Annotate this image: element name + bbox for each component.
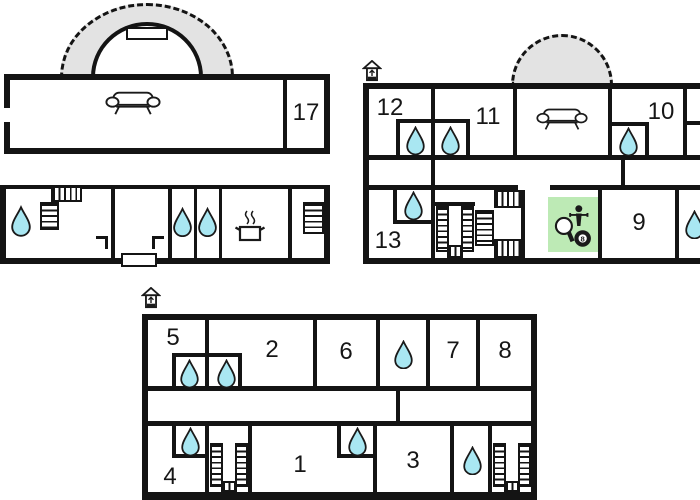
wall bbox=[0, 185, 6, 264]
wall bbox=[283, 80, 287, 148]
wall bbox=[598, 190, 602, 258]
staircase bbox=[303, 202, 324, 234]
wall bbox=[513, 89, 517, 155]
wall bbox=[373, 426, 377, 492]
wall bbox=[148, 386, 531, 391]
wall bbox=[4, 74, 10, 108]
wall bbox=[488, 426, 492, 492]
staircase bbox=[447, 245, 463, 258]
room-label-5: 5 bbox=[166, 324, 179, 352]
wall bbox=[396, 119, 400, 155]
room-label-4: 4 bbox=[163, 463, 176, 491]
wall bbox=[396, 391, 400, 426]
wall bbox=[4, 148, 330, 154]
staircase bbox=[51, 186, 82, 202]
wall bbox=[4, 74, 330, 80]
wall bbox=[645, 122, 649, 155]
wall bbox=[521, 190, 525, 258]
water-drop-icon bbox=[684, 210, 700, 239]
wall bbox=[363, 155, 700, 160]
room-label-1: 1 bbox=[293, 451, 306, 479]
eight-ball-icon: 8 bbox=[574, 230, 591, 247]
room-label-3: 3 bbox=[406, 447, 419, 475]
staircase bbox=[40, 202, 59, 230]
wall bbox=[466, 119, 470, 155]
wall bbox=[376, 320, 380, 386]
sofa-icon bbox=[105, 89, 161, 117]
water-drop-icon bbox=[618, 127, 639, 156]
water-drop-icon bbox=[440, 126, 461, 155]
wall bbox=[324, 74, 330, 154]
wall bbox=[476, 320, 480, 386]
wall bbox=[675, 190, 679, 258]
staircase bbox=[221, 481, 237, 492]
wall bbox=[142, 314, 148, 500]
foosball-player-icon bbox=[570, 205, 587, 226]
kitchen-pot-icon bbox=[232, 208, 268, 244]
staircase bbox=[494, 239, 521, 258]
room-label-8: 8 bbox=[498, 337, 511, 365]
sofa-icon bbox=[536, 106, 588, 132]
water-drop-icon bbox=[393, 340, 414, 369]
water-drop-icon bbox=[179, 359, 200, 388]
staircase bbox=[494, 190, 521, 208]
wall bbox=[0, 185, 330, 189]
water-drop-icon bbox=[405, 126, 426, 155]
wall bbox=[363, 258, 700, 264]
table-tennis-paddle-icon bbox=[556, 218, 573, 241]
floor-plan-canvas: 17 bbox=[0, 0, 700, 500]
water-drop-icon bbox=[172, 207, 193, 237]
wall bbox=[288, 189, 292, 258]
wall bbox=[393, 190, 397, 224]
room-label-17: 17 bbox=[293, 99, 320, 127]
wall bbox=[363, 83, 700, 89]
water-drop-icon bbox=[197, 207, 218, 237]
wall bbox=[393, 220, 431, 224]
dome-terrace bbox=[511, 34, 613, 85]
door-opening bbox=[105, 236, 108, 249]
wall bbox=[172, 353, 242, 357]
room-label-7: 7 bbox=[446, 337, 459, 365]
wall bbox=[238, 353, 242, 386]
room-label-9: 9 bbox=[632, 209, 645, 237]
water-drop-icon bbox=[403, 191, 424, 220]
room-label-13: 13 bbox=[375, 227, 402, 255]
wall bbox=[431, 190, 435, 258]
wall bbox=[111, 189, 115, 258]
entrance-icon bbox=[362, 60, 382, 82]
staircase bbox=[504, 481, 520, 492]
wall bbox=[363, 83, 369, 264]
entrance-icon bbox=[141, 287, 161, 309]
wall bbox=[219, 189, 222, 258]
wall bbox=[313, 320, 317, 386]
terrace-door-opening bbox=[126, 27, 168, 40]
wall bbox=[248, 426, 252, 492]
room-label-10: 10 bbox=[648, 98, 675, 126]
svg-text:8: 8 bbox=[581, 234, 586, 243]
wall bbox=[612, 122, 649, 126]
water-drop-icon bbox=[180, 427, 201, 456]
entry-door-opening bbox=[121, 253, 157, 267]
water-drop-icon bbox=[462, 446, 483, 475]
door-opening bbox=[152, 236, 155, 249]
wall bbox=[324, 185, 330, 264]
wall bbox=[172, 353, 176, 386]
wall bbox=[142, 492, 537, 500]
games-icon: 8 bbox=[552, 200, 596, 250]
wall bbox=[531, 314, 537, 500]
staircase bbox=[475, 210, 494, 246]
room-label-2: 2 bbox=[265, 336, 278, 364]
wall bbox=[435, 119, 470, 123]
wall bbox=[426, 320, 430, 386]
wall bbox=[687, 121, 700, 125]
water-drop-icon bbox=[10, 205, 32, 237]
room-label-12: 12 bbox=[377, 94, 404, 122]
wall bbox=[205, 426, 209, 492]
water-drop-icon bbox=[216, 359, 237, 388]
room-label-6: 6 bbox=[339, 338, 352, 366]
wall bbox=[450, 426, 454, 492]
room-label-11: 11 bbox=[476, 103, 501, 131]
wall bbox=[0, 258, 330, 264]
water-drop-icon bbox=[347, 427, 368, 456]
